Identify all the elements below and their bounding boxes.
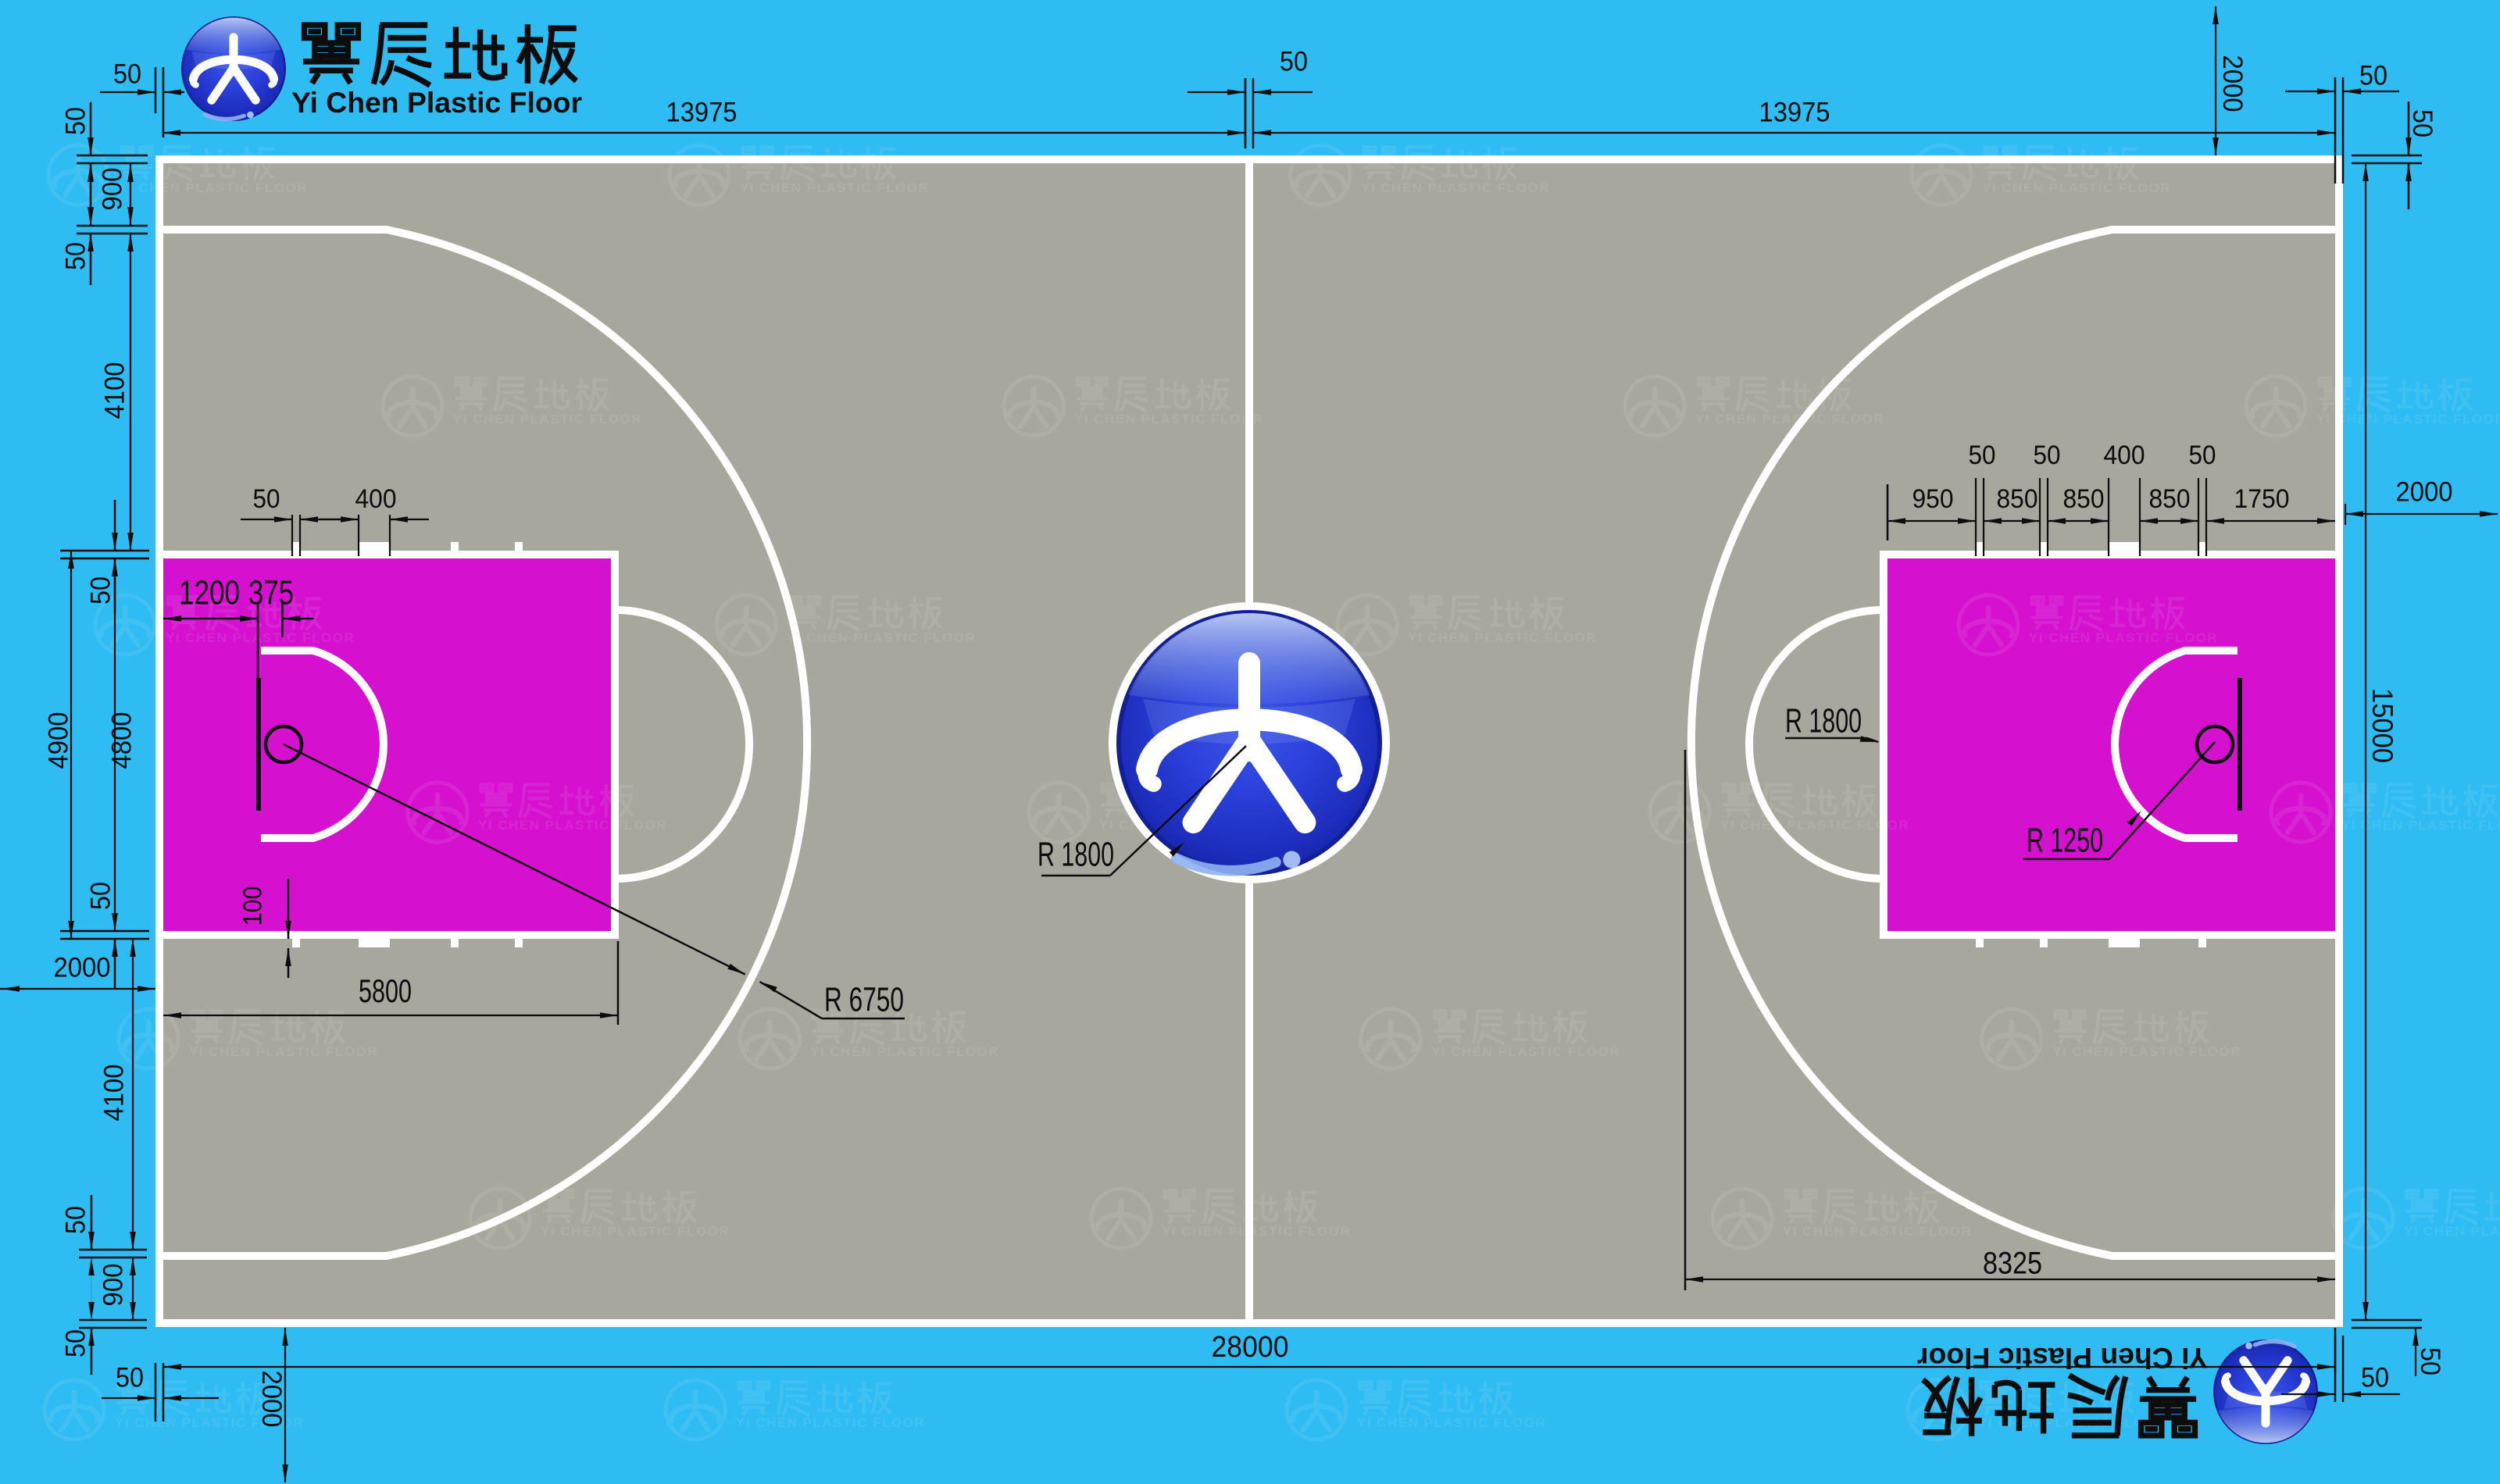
svg-text:YI CHEN PLASTIC FLOOR: YI CHEN PLASTIC FLOOR xyxy=(119,180,308,195)
svg-text:4100: 4100 xyxy=(99,362,130,419)
svg-text:YI CHEN PLASTIC FLOOR: YI CHEN PLASTIC FLOOR xyxy=(787,630,976,645)
svg-text:50: 50 xyxy=(60,107,91,135)
svg-text:2000: 2000 xyxy=(2396,476,2453,507)
svg-text:8325: 8325 xyxy=(1983,1247,2042,1281)
svg-text:YI CHEN PLASTIC FLOOR: YI CHEN PLASTIC FLOOR xyxy=(736,1415,925,1430)
svg-text:50: 50 xyxy=(2407,109,2437,137)
svg-text:100: 100 xyxy=(238,886,267,926)
svg-text:2000: 2000 xyxy=(256,1371,287,1428)
svg-text:R 1800: R 1800 xyxy=(1785,702,1862,740)
svg-text:YI CHEN PLASTIC FLOOR: YI CHEN PLASTIC FLOOR xyxy=(1695,412,1884,426)
svg-text:850: 850 xyxy=(1997,484,2038,514)
svg-text:YI CHEN PLASTIC FLOOR: YI CHEN PLASTIC FLOOR xyxy=(1074,412,1263,426)
svg-text:R 1800: R 1800 xyxy=(1037,836,1114,874)
svg-text:YI CHEN PLASTIC FLOOR: YI CHEN PLASTIC FLOOR xyxy=(1408,630,1597,645)
svg-text:50: 50 xyxy=(2034,441,2061,470)
svg-text:375: 375 xyxy=(248,574,294,612)
svg-text:YI CHEN PLASTIC FLOOR: YI CHEN PLASTIC FLOOR xyxy=(453,412,642,426)
svg-text:950: 950 xyxy=(1912,484,1954,514)
svg-text:YI CHEN PLASTIC FLOOR: YI CHEN PLASTIC FLOOR xyxy=(2404,1224,2500,1239)
svg-text:YI CHEN PLASTIC FLOOR: YI CHEN PLASTIC FLOOR xyxy=(2029,630,2218,645)
svg-text:15000: 15000 xyxy=(2366,688,2398,763)
svg-text:YI CHEN PLASTIC FLOOR: YI CHEN PLASTIC FLOOR xyxy=(1982,180,2171,195)
svg-text:YI CHEN PLASTIC FLOOR: YI CHEN PLASTIC FLOOR xyxy=(740,180,929,195)
svg-text:R 6750: R 6750 xyxy=(824,981,904,1019)
svg-text:50: 50 xyxy=(60,242,91,270)
svg-text:28000: 28000 xyxy=(1212,1331,1289,1364)
svg-text:850: 850 xyxy=(2063,484,2105,514)
svg-text:50: 50 xyxy=(2359,60,2387,91)
svg-text:50: 50 xyxy=(1969,441,1996,470)
svg-text:YI CHEN PLASTIC FLOOR: YI CHEN PLASTIC FLOOR xyxy=(166,630,355,645)
svg-text:50: 50 xyxy=(2415,1347,2445,1375)
svg-text:50: 50 xyxy=(113,59,141,89)
svg-text:5800: 5800 xyxy=(359,972,412,1009)
svg-text:YI CHEN PLASTIC FLOOR: YI CHEN PLASTIC FLOOR xyxy=(2052,1044,2241,1059)
svg-text:50: 50 xyxy=(2361,1362,2389,1393)
svg-text:13975: 13975 xyxy=(666,97,737,127)
svg-text:R 1250: R 1250 xyxy=(2027,822,2103,860)
svg-text:YI CHEN PLASTIC FLOOR: YI CHEN PLASTIC FLOOR xyxy=(541,1224,730,1239)
svg-text:YI CHEN PLASTIC FLOOR: YI CHEN PLASTIC FLOOR xyxy=(1357,1415,1546,1430)
svg-text:YI CHEN PLASTIC FLOOR: YI CHEN PLASTIC FLOOR xyxy=(1361,180,1550,195)
svg-text:YI CHEN PLASTIC FLOOR: YI CHEN PLASTIC FLOOR xyxy=(1162,1224,1351,1239)
svg-text:4100: 4100 xyxy=(98,1065,129,1122)
svg-text:YI CHEN PLASTIC FLOOR: YI CHEN PLASTIC FLOOR xyxy=(1431,1044,1620,1059)
svg-text:YI CHEN PLASTIC FLOOR: YI CHEN PLASTIC FLOOR xyxy=(189,1044,378,1059)
svg-text:1750: 1750 xyxy=(2234,484,2290,514)
svg-text:Yi Chen Plastic Floor: Yi Chen Plastic Floor xyxy=(291,87,582,119)
svg-text:13975: 13975 xyxy=(1759,97,1830,127)
svg-text:YI CHEN PLASTIC FLOOR: YI CHEN PLASTIC FLOOR xyxy=(810,1044,999,1059)
svg-text:50: 50 xyxy=(85,882,116,910)
svg-text:4900: 4900 xyxy=(43,712,73,769)
svg-text:2000: 2000 xyxy=(54,952,111,983)
svg-text:4800: 4800 xyxy=(106,712,137,769)
svg-text:50: 50 xyxy=(85,576,116,605)
svg-text:YI CHEN PLASTIC FLOOR: YI CHEN PLASTIC FLOOR xyxy=(1783,1224,1972,1239)
svg-text:YI CHEN PLASTIC FLOOR: YI CHEN PLASTIC FLOOR xyxy=(1720,818,1909,833)
svg-text:900: 900 xyxy=(97,168,127,211)
svg-text:50: 50 xyxy=(116,1362,144,1393)
svg-text:50: 50 xyxy=(60,1329,91,1357)
svg-text:400: 400 xyxy=(355,484,397,514)
svg-text:YI CHEN PLASTIC FLOOR: YI CHEN PLASTIC FLOOR xyxy=(2316,412,2500,426)
svg-text:850: 850 xyxy=(2149,484,2191,514)
svg-text:2000: 2000 xyxy=(2217,55,2248,112)
svg-text:50: 50 xyxy=(1280,46,1308,77)
svg-text:50: 50 xyxy=(60,1206,91,1234)
svg-text:50: 50 xyxy=(253,484,280,514)
svg-text:900: 900 xyxy=(98,1264,128,1307)
svg-text:YI CHEN PLASTIC FLOOR: YI CHEN PLASTIC FLOOR xyxy=(478,818,667,833)
svg-text:50: 50 xyxy=(2189,441,2216,470)
svg-text:Yi Chen Plastic Floor: Yi Chen Plastic Floor xyxy=(1917,1342,2208,1374)
svg-text:400: 400 xyxy=(2104,441,2145,470)
svg-text:1200: 1200 xyxy=(179,574,240,612)
